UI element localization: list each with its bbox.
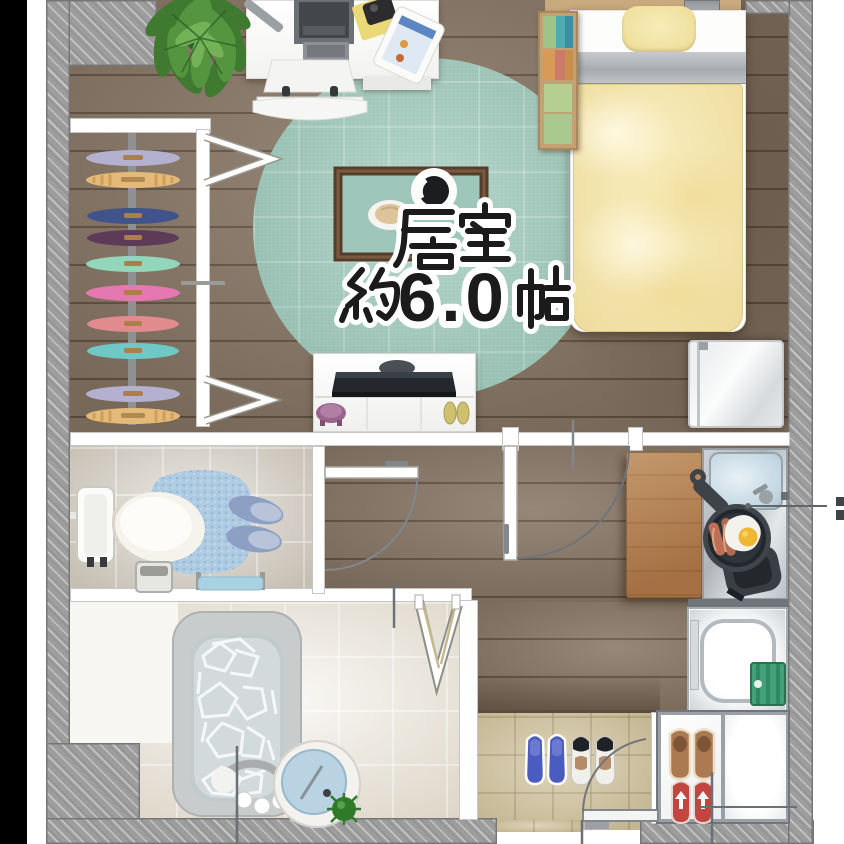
svg-text:6.0: 6.0 — [398, 259, 509, 336]
